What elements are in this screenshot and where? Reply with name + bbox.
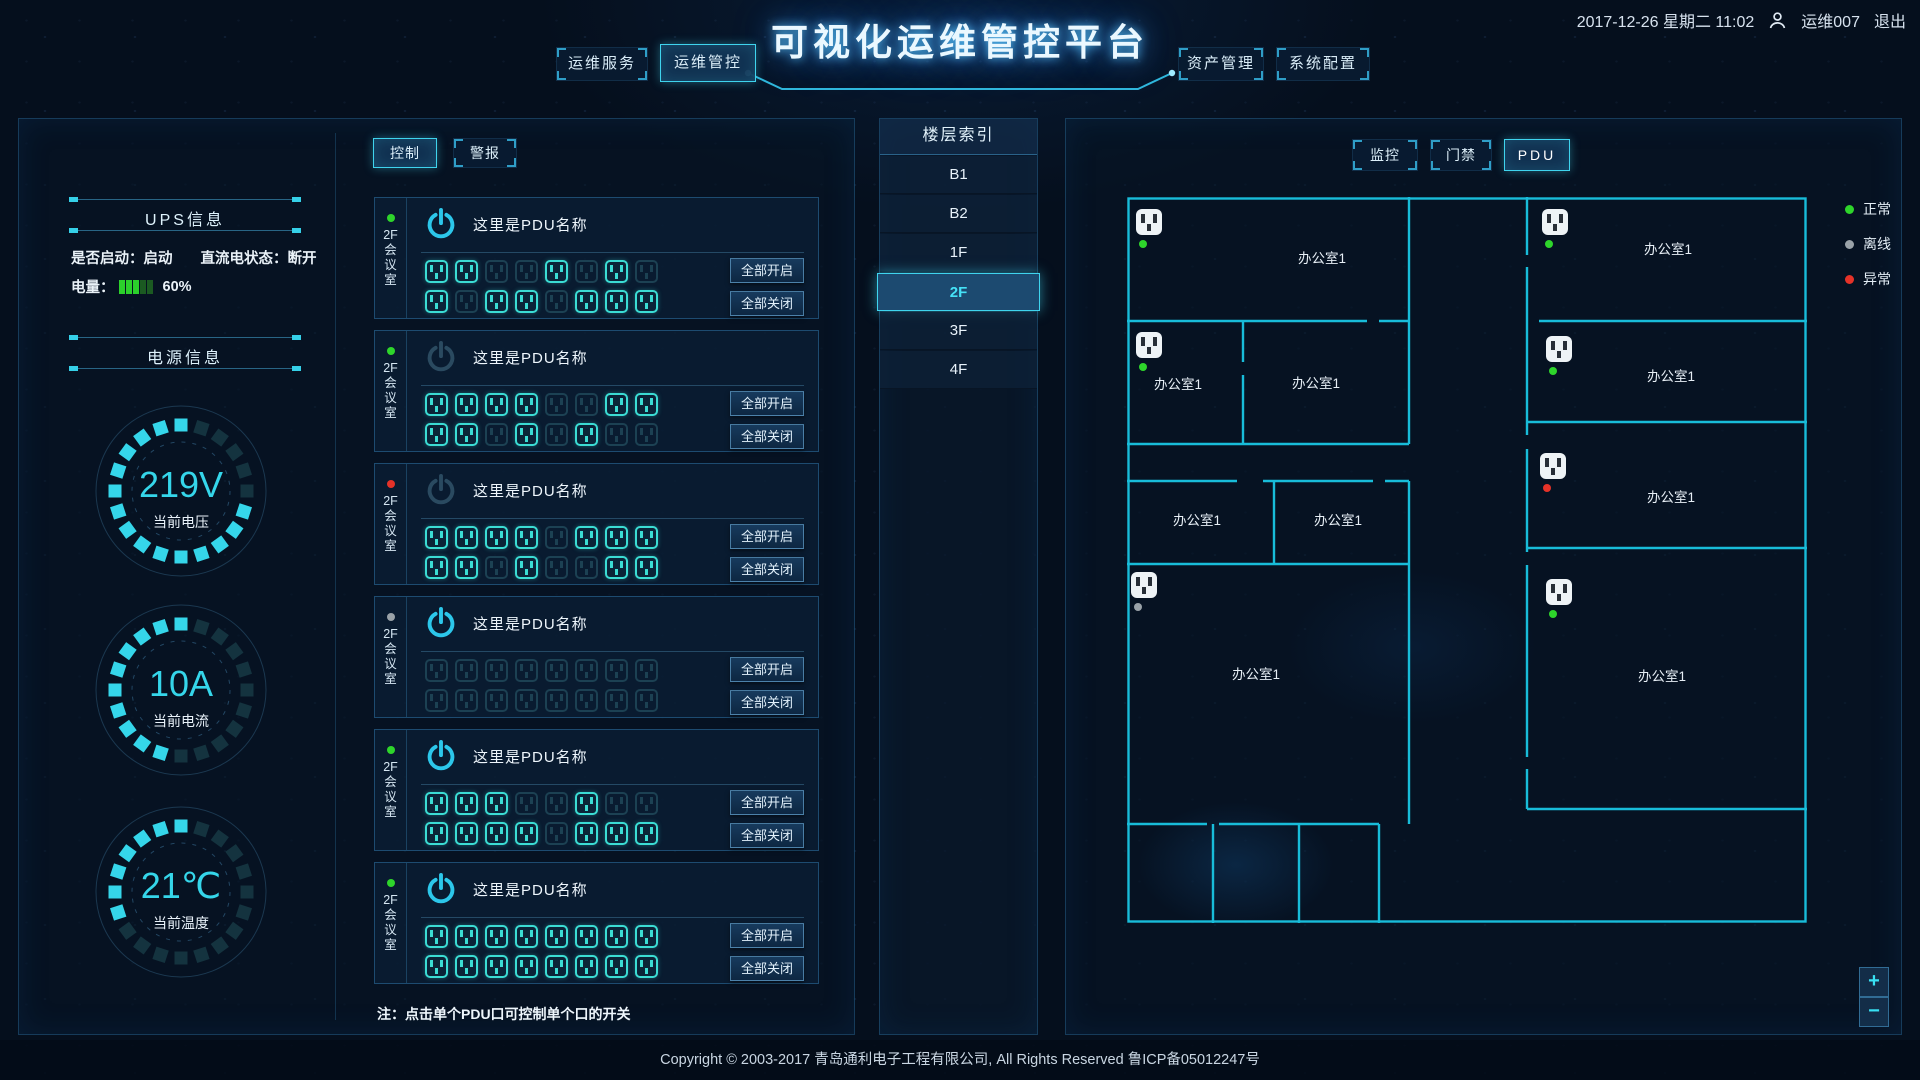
logout-button[interactable]: 退出 [1874,8,1906,32]
pdu-outlet[interactable] [455,423,478,446]
pdu-room-column: 2F会议室 [375,863,407,983]
pdu-status-dot [387,480,395,488]
panel-ups-pdu: UPS信息 是否启动：启动 直流电状态：断开 电量： 60% 电源信息 219V… [18,118,855,1035]
pdu-outlet[interactable] [515,925,538,948]
pdu-outlet[interactable] [485,526,508,549]
user-icon [1768,11,1787,30]
pdu-outlet[interactable] [575,423,598,446]
pdu-outlet[interactable] [575,290,598,313]
ups-title: UPS信息 [69,206,301,230]
pdu-outlet[interactable] [635,526,658,549]
pdu-outlet[interactable] [605,423,628,446]
pdu-status-dot [387,879,395,887]
ups-start-status: 是否启动：启动 [71,247,173,268]
legend-label: 离线 [1863,234,1891,254]
all-off-button[interactable]: 全部关闭 [730,424,804,449]
footer-copyright: Copyright © 2003-2017 青岛通利电子工程有限公司, All … [0,1040,1920,1080]
legend-row: 正常 [1845,199,1891,219]
pdu-room-column: 2F会议室 [375,331,407,451]
pdu-outlet[interactable] [635,290,658,313]
pdu-outlet[interactable] [515,423,538,446]
tab-pdu[interactable]: PDU [1504,139,1570,171]
nav-asset-mgmt[interactable]: 资产管理 [1178,47,1264,81]
zoom-in-button[interactable]: + [1859,967,1889,997]
pdu-outlet[interactable] [605,526,628,549]
legend-dot [1845,205,1854,214]
battery-cell [126,280,132,294]
pdu-outlet[interactable] [575,792,598,815]
pdu-outlet[interactable] [425,290,448,313]
pdu-item: 2F会议室 这里是PDU名称全部开启全部关闭 [374,596,819,718]
gauge-当前电压: 219V当前电压 [86,396,276,586]
ups-battery-line: 电量： 60% [71,276,192,297]
pdu-outlet[interactable] [425,659,448,682]
all-off-button[interactable]: 全部关闭 [730,557,804,582]
pdu-note: 注：点击单个PDU口可控制单个口的开关 [377,1004,631,1024]
pdu-outlet[interactable] [545,822,568,845]
pdu-outlet[interactable] [455,526,478,549]
pdu-room-label: 2F会议室 [383,494,398,554]
header-status-bar: 2017-12-26 星期二 11:02 运维007 退出 [1577,6,1906,34]
outlet-grid [425,393,658,446]
pdu-outlet[interactable] [485,955,508,978]
power-icon [423,206,459,242]
pdu-room-column: 2F会议室 [375,198,407,318]
tab-control[interactable]: 控制 [373,138,437,168]
title-decoration [740,66,1180,96]
ups-dc-status: 直流电状态：断开 [201,247,317,268]
nav-ops-service[interactable]: 运维服务 [556,47,648,81]
pdu-name: 这里是PDU名称 [473,613,588,634]
pdu-outlet[interactable] [635,689,658,712]
pdu-outlet[interactable] [515,822,538,845]
plan-socket-green[interactable] [1136,209,1162,235]
pdu-item: 2F会议室 这里是PDU名称全部开启全部关闭 [374,729,819,851]
pdu-name: 这里是PDU名称 [473,480,588,501]
pdu-outlet[interactable] [605,822,628,845]
pdu-outlet[interactable] [485,925,508,948]
pdu-room-label: 2F会议室 [383,228,398,288]
pdu-outlet[interactable] [515,393,538,416]
pdu-outlet[interactable] [515,689,538,712]
pdu-outlet[interactable] [485,659,508,682]
pdu-name: 这里是PDU名称 [473,347,588,368]
pdu-outlet[interactable] [605,290,628,313]
pdu-outlet[interactable] [485,260,508,283]
all-off-button[interactable]: 全部关闭 [730,690,804,715]
pdu-outlet[interactable] [455,955,478,978]
floor-item-2F[interactable]: 2F [877,273,1040,311]
tab-monitor[interactable]: 监控 [1352,139,1418,171]
pdu-outlet[interactable] [545,955,568,978]
battery-cell [119,280,125,294]
pdu-outlet[interactable] [515,526,538,549]
pdu-outlet[interactable] [575,822,598,845]
gauge-当前电流: 10A当前电流 [86,595,276,785]
pdu-status-dot [387,746,395,754]
pdu-outlet[interactable] [575,556,598,579]
datetime-text: 2017-12-26 星期二 11:02 [1577,8,1755,32]
pdu-outlet[interactable] [485,423,508,446]
room-label: 办公室1 [1647,486,1695,506]
power-title: 电源信息 [69,344,301,368]
pdu-outlet[interactable] [425,792,448,815]
pdu-outlet[interactable] [515,556,538,579]
room-label: 办公室1 [1173,509,1221,529]
room-label: 办公室1 [1232,663,1280,683]
legend-row: 离线 [1845,234,1891,254]
floor-item-1F[interactable]: 1F [880,234,1037,272]
pdu-outlet[interactable] [425,689,448,712]
pdu-room-column: 2F会议室 [375,597,407,717]
floor-item-B1[interactable]: B1 [880,156,1037,194]
pdu-outlet[interactable] [425,423,448,446]
pdu-item: 2F会议室 这里是PDU名称全部开启全部关闭 [374,197,819,319]
power-icon [423,871,459,907]
pdu-outlet[interactable] [575,955,598,978]
pdu-status-dot [387,214,395,222]
battery-cell [147,280,153,294]
pdu-outlet[interactable] [605,556,628,579]
pdu-outlet[interactable] [635,822,658,845]
legend-row: 异常 [1845,269,1891,289]
pdu-room-label: 2F会议室 [383,361,398,421]
pdu-outlet[interactable] [425,260,448,283]
room-label: 办公室1 [1292,372,1340,392]
room-label: 办公室1 [1638,665,1686,685]
floor-index-title: 楼层索引 [880,119,1037,155]
pdu-outlet[interactable] [515,792,538,815]
tab-access[interactable]: 门禁 [1430,139,1492,171]
power-icon [423,738,459,774]
room-label: 办公室1 [1314,509,1362,529]
pdu-outlet[interactable] [545,526,568,549]
pdu-outlet[interactable] [455,260,478,283]
pdu-outlet[interactable] [455,925,478,948]
svg-text:当前电压: 当前电压 [153,514,209,530]
nav-system-config[interactable]: 系统配置 [1276,47,1370,81]
pdu-outlet[interactable] [455,556,478,579]
pdu-item: 2F会议室 这里是PDU名称全部开启全部关闭 [374,862,819,984]
pdu-outlet[interactable] [455,689,478,712]
pdu-outlet[interactable] [425,925,448,948]
all-on-button[interactable]: 全部开启 [730,923,804,948]
pdu-name: 这里是PDU名称 [473,214,588,235]
pdu-outlet[interactable] [575,260,598,283]
pdu-outlet[interactable] [425,822,448,845]
pdu-outlet[interactable] [605,925,628,948]
pdu-outlet[interactable] [425,526,448,549]
floor-item-list: B1B21F2F3F4F [880,156,1037,389]
battery-percent: 60% [163,279,192,295]
pdu-outlet[interactable] [485,792,508,815]
pdu-outlet[interactable] [485,290,508,313]
all-on-button[interactable]: 全部开启 [730,258,804,283]
legend-dot [1845,240,1854,249]
room-label: 办公室1 [1154,373,1202,393]
pdu-outlet[interactable] [545,659,568,682]
room-label: 办公室1 [1647,365,1695,385]
room-label: 办公室1 [1298,247,1346,267]
panel-floor-index: 楼层索引 B1B21F2F3F4F [879,118,1038,1035]
pdu-outlet[interactable] [575,659,598,682]
pdu-outlet[interactable] [635,260,658,283]
pdu-outlet[interactable] [515,260,538,283]
pdu-outlet[interactable] [605,260,628,283]
pdu-status-dot [387,347,395,355]
legend-label: 正常 [1863,199,1891,219]
pdu-outlet[interactable] [545,925,568,948]
pdu-outlet[interactable] [485,556,508,579]
pdu-room-column: 2F会议室 [375,730,407,850]
pdu-outlet[interactable] [545,556,568,579]
pdu-outlet[interactable] [425,955,448,978]
outlet-grid [425,925,658,978]
pdu-outlet[interactable] [635,955,658,978]
floor-plan-canvas: 办公室1办公室1办公室1办公室1办公室1办公室1办公室1办公室1办公室1办公室1 [1127,197,1807,923]
pdu-outlet[interactable] [485,393,508,416]
all-off-button[interactable]: 全部关闭 [730,956,804,981]
plan-socket-red[interactable] [1540,453,1566,479]
outlet-grid [425,260,658,313]
battery-label: 电量： [71,276,115,297]
legend-label: 异常 [1863,269,1891,289]
pdu-item: 2F会议室 这里是PDU名称全部开启全部关闭 [374,463,819,585]
floor-item-3F[interactable]: 3F [880,312,1037,350]
ups-status-line: 是否启动：启动 直流电状态：断开 [71,247,317,268]
pdu-name: 这里是PDU名称 [473,746,588,767]
pdu-outlet[interactable] [635,393,658,416]
svg-text:10A: 10A [149,663,213,704]
status-legend: 正常离线异常 [1845,199,1891,304]
pdu-outlet[interactable] [635,423,658,446]
pdu-name: 这里是PDU名称 [473,879,588,900]
battery-cell [133,280,139,294]
plan-socket-gray[interactable] [1131,572,1157,598]
pdu-outlet[interactable] [455,393,478,416]
pdu-outlet[interactable] [455,290,478,313]
pdu-outlet[interactable] [545,260,568,283]
pdu-outlet[interactable] [605,659,628,682]
pdu-outlet[interactable] [515,659,538,682]
room-label: 办公室1 [1644,238,1692,258]
zoom-out-button[interactable]: − [1859,997,1889,1027]
ups-section-header: UPS信息 [69,199,301,231]
pdu-outlet[interactable] [605,955,628,978]
left-panel-divider [335,133,336,1020]
pdu-room-label: 2F会议室 [383,627,398,687]
pdu-outlet[interactable] [635,792,658,815]
pdu-outlet[interactable] [575,393,598,416]
pdu-outlet[interactable] [575,526,598,549]
battery-gauge [119,280,153,294]
nav-ops-control[interactable]: 运维管控 [660,44,756,82]
all-on-button[interactable]: 全部开启 [730,657,804,682]
floor-item-4F[interactable]: 4F [880,351,1037,389]
tab-alarm[interactable]: 警报 [453,138,517,168]
outlet-grid [425,792,658,845]
pdu-outlet[interactable] [485,689,508,712]
pdu-room-label: 2F会议室 [383,760,398,820]
all-on-button[interactable]: 全部开启 [730,524,804,549]
username-text: 运维007 [1801,8,1860,32]
pdu-outlet[interactable] [485,822,508,845]
pdu-outlet[interactable] [635,556,658,579]
pdu-outlet[interactable] [455,822,478,845]
pdu-outlet[interactable] [425,393,448,416]
pdu-outlet[interactable] [455,792,478,815]
all-off-button[interactable]: 全部关闭 [730,291,804,316]
svg-text:当前电流: 当前电流 [153,713,209,729]
pdu-outlet[interactable] [545,792,568,815]
pdu-outlet[interactable] [635,925,658,948]
power-icon [423,472,459,508]
pdu-outlet[interactable] [545,423,568,446]
pdu-outlet[interactable] [545,290,568,313]
pdu-room-column: 2F会议室 [375,464,407,584]
plan-socket-green[interactable] [1546,579,1572,605]
outlet-grid [425,659,658,712]
pdu-outlet[interactable] [605,689,628,712]
power-icon [423,339,459,375]
pdu-outlet[interactable] [515,955,538,978]
all-on-button[interactable]: 全部开启 [730,790,804,815]
all-on-button[interactable]: 全部开启 [730,391,804,416]
panel-floor-plan: 监控 门禁 PDU [1065,118,1902,1035]
pdu-status-dot [387,613,395,621]
floor-item-B2[interactable]: B2 [880,195,1037,233]
plan-socket-green[interactable] [1136,332,1162,358]
pdu-outlet[interactable] [575,689,598,712]
pdu-outlet[interactable] [605,393,628,416]
battery-cell [140,280,146,294]
pdu-outlet[interactable] [425,556,448,579]
all-off-button[interactable]: 全部关闭 [730,823,804,848]
gauge-当前温度: 21℃当前温度 [86,797,276,987]
pdu-room-label: 2F会议室 [383,893,398,953]
floor-plan-walls [1127,197,1807,923]
pdu-outlet[interactable] [575,925,598,948]
pdu-outlet[interactable] [515,290,538,313]
svg-text:当前温度: 当前温度 [153,915,209,931]
pdu-outlet[interactable] [635,659,658,682]
pdu-outlet[interactable] [545,393,568,416]
pdu-item: 2F会议室 这里是PDU名称全部开启全部关闭 [374,330,819,452]
outlet-grid [425,526,658,579]
pdu-outlet[interactable] [605,792,628,815]
power-icon [423,605,459,641]
svg-text:21℃: 21℃ [141,865,221,906]
plan-socket-green[interactable] [1546,336,1572,362]
power-section-header: 电源信息 [69,337,301,369]
plan-socket-green[interactable] [1542,209,1568,235]
app-root: 可视化运维管控平台 2017-12-26 星期二 11:02 运维007 退出 … [0,0,1920,1080]
pdu-outlet[interactable] [545,689,568,712]
svg-text:219V: 219V [139,464,223,505]
legend-dot [1845,275,1854,284]
pdu-outlet[interactable] [455,659,478,682]
